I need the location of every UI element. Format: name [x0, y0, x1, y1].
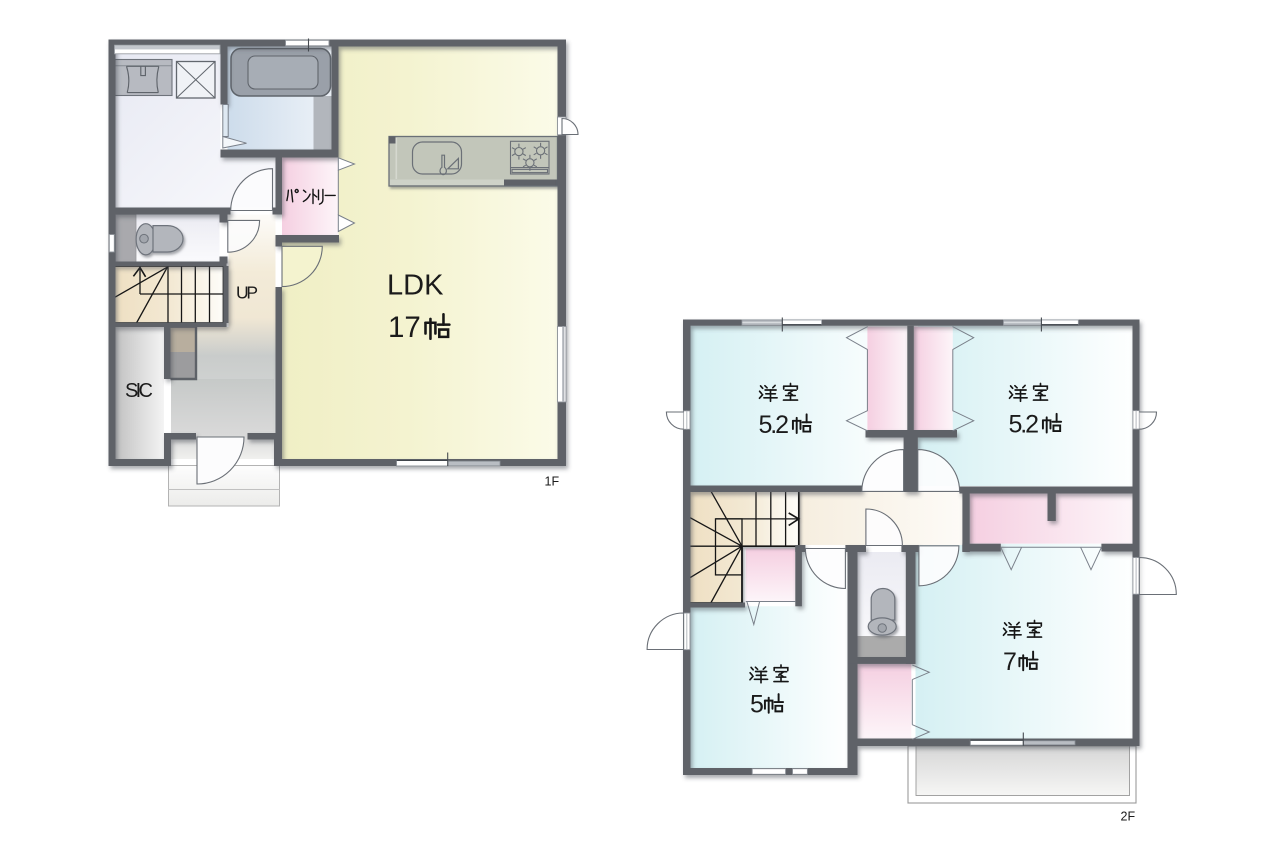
- svg-text:1F: 1F: [545, 475, 560, 489]
- svg-text:5: 5: [750, 691, 764, 719]
- svg-text:2F: 2F: [1121, 810, 1136, 824]
- svg-text:7: 7: [1003, 648, 1017, 676]
- svg-text:UP: UP: [236, 283, 258, 303]
- svg-text:5.2: 5.2: [1009, 411, 1040, 439]
- svg-text:5.2: 5.2: [759, 411, 790, 439]
- svg-text:LDK: LDK: [387, 270, 444, 302]
- svg-text:SIC: SIC: [125, 380, 153, 402]
- svg-text:17: 17: [388, 311, 421, 344]
